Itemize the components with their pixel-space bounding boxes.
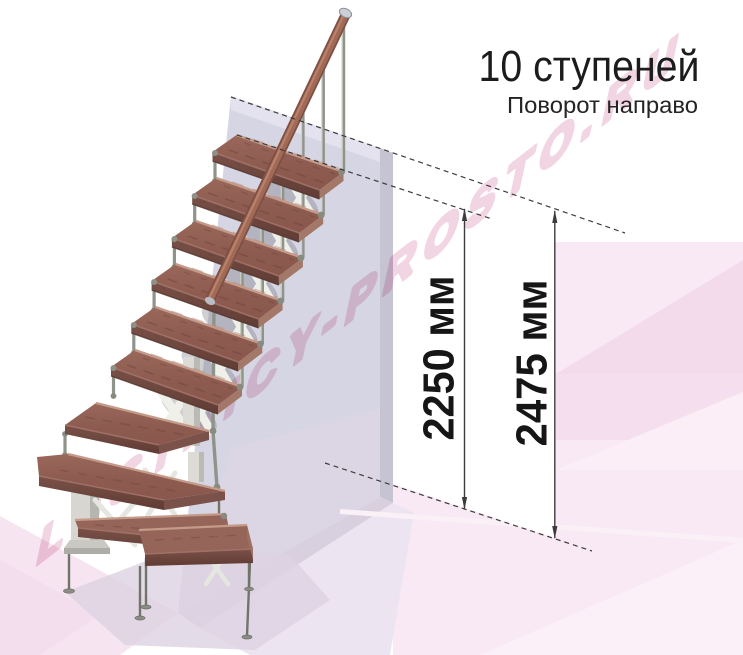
svg-text:10 ступеней: 10 ступеней — [479, 42, 700, 91]
svg-text:Поворот направо: Поворот направо — [507, 92, 698, 118]
svg-text:2475 мм: 2475 мм — [508, 280, 556, 447]
svg-text:2250 мм: 2250 мм — [416, 276, 464, 441]
